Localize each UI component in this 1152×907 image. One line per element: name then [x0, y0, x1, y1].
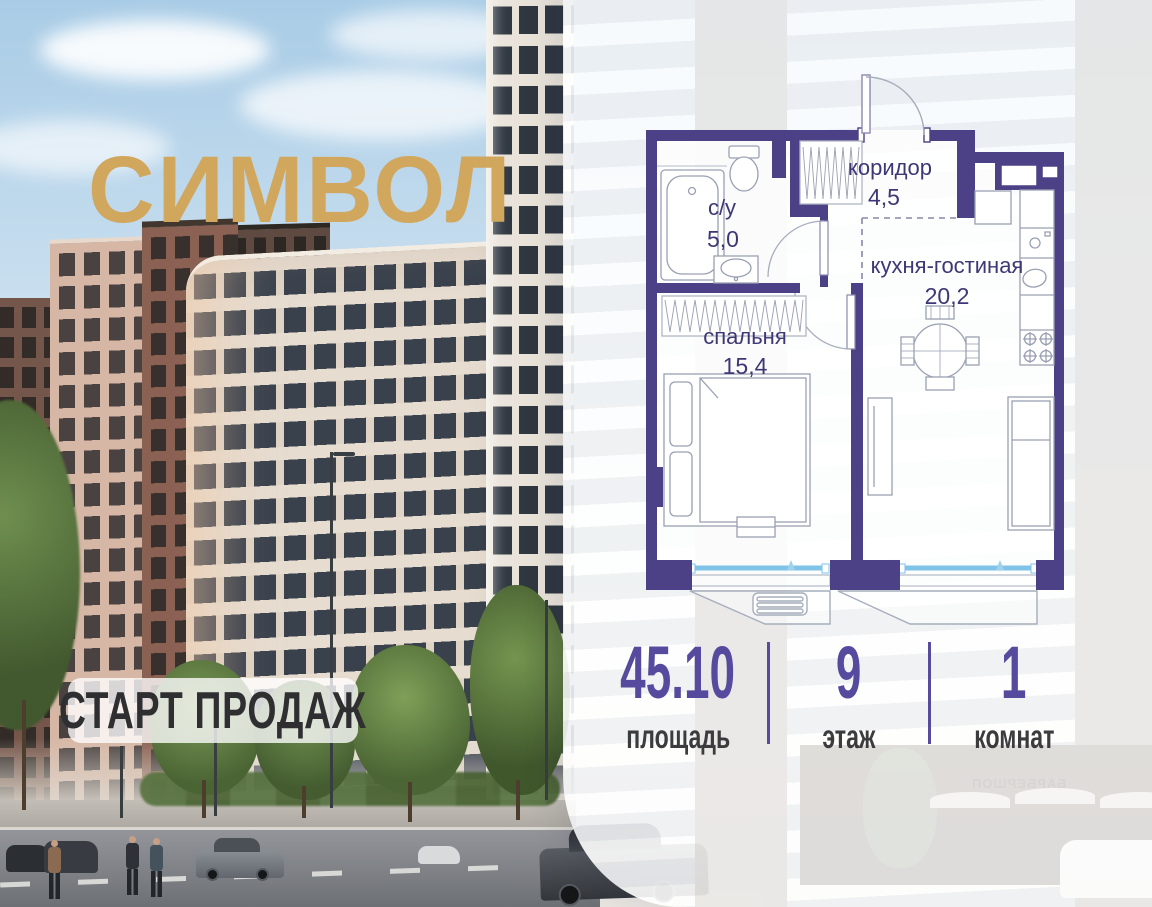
- tree-trunk: [516, 780, 520, 820]
- stat-area: 45.10 площадь: [563, 640, 767, 756]
- stat-rooms-label: комнат: [974, 718, 1054, 756]
- gray-sedan: [196, 850, 284, 878]
- white-car: [418, 846, 460, 864]
- pedestrian: [150, 838, 163, 897]
- promo-card: СИМВОЛ СТАРТ ПРОДАЖ БАРБЕРШОП: [0, 0, 1152, 907]
- stat-rooms-value: 1: [1001, 640, 1027, 706]
- stat-floor-label: этаж: [822, 718, 875, 756]
- pedestrian: [48, 840, 61, 899]
- apartment-stats: 45.10 площадь 9 этаж 1 комнат: [563, 640, 1123, 760]
- stat-area-label: площадь: [626, 718, 730, 756]
- tree-trunk: [22, 700, 26, 810]
- stat-floor: 9 этаж: [770, 640, 928, 756]
- stat-rooms: 1 комнат: [931, 640, 1097, 756]
- apartment-card-panel[interactable]: БАРБЕРШОП: [563, 0, 1152, 907]
- street-lamp: [330, 452, 333, 808]
- sales-start-badge-label: СТАРТ ПРОДАЖ: [59, 681, 367, 741]
- stat-floor-value: 9: [836, 640, 862, 706]
- tree-trunk: [408, 782, 412, 822]
- tree-trunk: [202, 780, 206, 818]
- sales-start-badge: СТАРТ ПРОДАЖ: [68, 678, 358, 743]
- faded-photo-backdrop: БАРБЕРШОП: [563, 0, 1152, 907]
- tree-trunk: [302, 786, 306, 818]
- cloud: [40, 20, 270, 80]
- brand-logo: СИМВОЛ: [88, 140, 476, 240]
- faded-barbershop-sign: БАРБЕРШОП: [971, 776, 1066, 791]
- pedestrian: [126, 836, 139, 895]
- street-lamp: [545, 600, 548, 800]
- street-lamp: [120, 746, 123, 818]
- stat-area-value: 45.10: [621, 640, 736, 706]
- cloud: [240, 70, 520, 140]
